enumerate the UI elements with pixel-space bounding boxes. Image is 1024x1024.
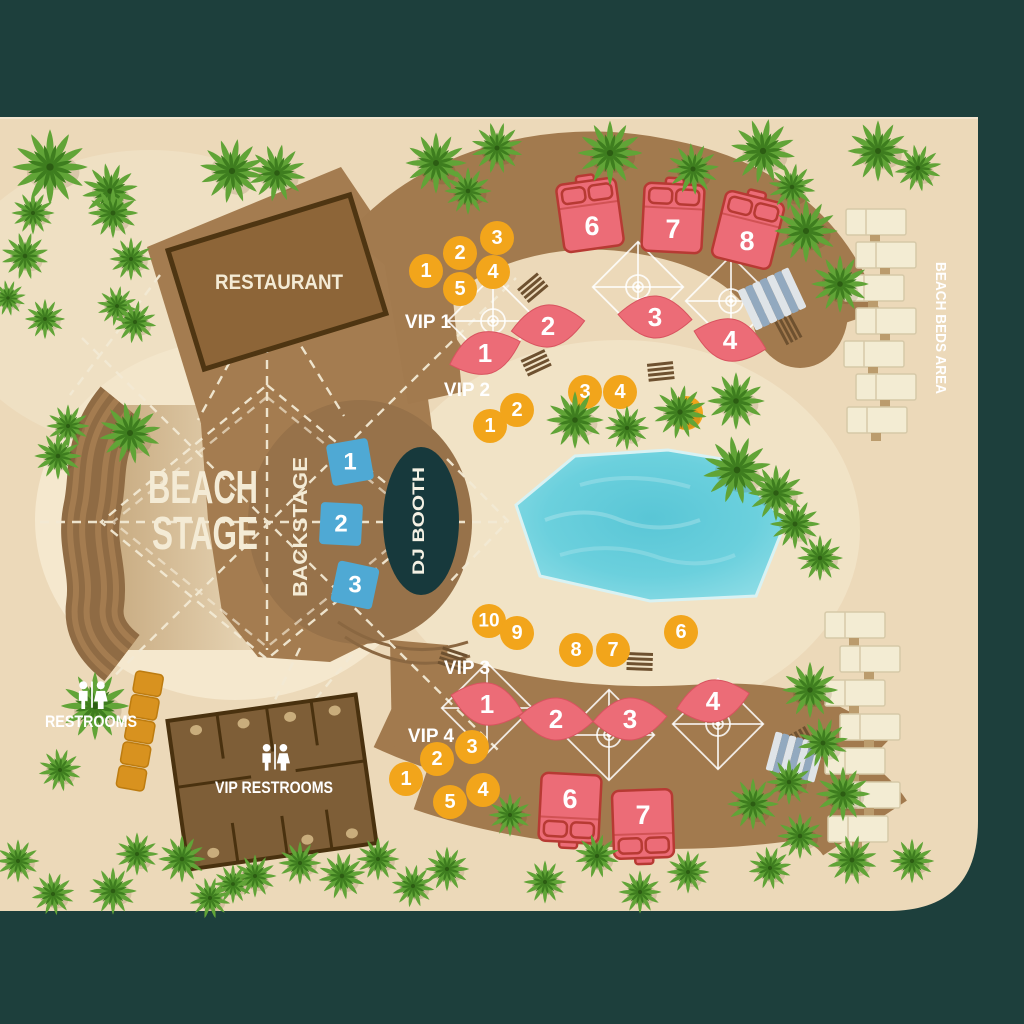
venue-map: 1 2 3 4 1 2 3 4 6 7 8 6 7 1 2 3 bbox=[0, 0, 1024, 1024]
vip3-label: VIP 3 bbox=[444, 658, 490, 679]
table-number: 7 bbox=[607, 639, 618, 661]
daybed-number: 4 bbox=[723, 325, 738, 355]
table-number: 4 bbox=[477, 779, 489, 801]
backstage-table-number: 2 bbox=[334, 511, 347, 538]
daybed-number: 2 bbox=[549, 704, 563, 734]
table-number: 3 bbox=[466, 736, 477, 758]
backstage-label: BACKSTAGE bbox=[290, 457, 312, 597]
bed-number: 8 bbox=[739, 226, 754, 256]
table-number: 2 bbox=[511, 399, 522, 421]
table-number: 2 bbox=[431, 748, 442, 770]
bed-number: 6 bbox=[584, 211, 599, 241]
backstage-table-number: 3 bbox=[348, 572, 361, 599]
restrooms-label: RESTROOMS bbox=[45, 712, 137, 731]
table-number: 5 bbox=[454, 278, 465, 300]
daybed-number: 3 bbox=[623, 704, 637, 734]
beach-stage-label-line2: STAGE bbox=[152, 507, 258, 559]
daybed-number: 1 bbox=[478, 338, 492, 368]
daybed-number: 1 bbox=[480, 689, 494, 719]
table-number: 9 bbox=[511, 622, 522, 644]
daybed-number: 4 bbox=[706, 686, 721, 716]
beach-beds-area-label: BEACH BEDS AREA bbox=[932, 262, 949, 394]
table-number: 1 bbox=[484, 415, 495, 437]
vip-restrooms-label: VIP RESTROOMS bbox=[215, 778, 333, 797]
table-number: 5 bbox=[444, 791, 455, 813]
vip4-label: VIP 4 bbox=[408, 726, 455, 747]
table-number: 4 bbox=[614, 381, 626, 403]
bed-number: 7 bbox=[635, 800, 650, 830]
table-number: 1 bbox=[420, 260, 431, 282]
beach-stage-label-line1: BEACH bbox=[148, 461, 258, 513]
bed-number: 7 bbox=[665, 214, 680, 244]
vip1-label: VIP 1 bbox=[405, 312, 452, 333]
vip2-label: VIP 2 bbox=[444, 380, 490, 401]
daybed-number: 3 bbox=[648, 302, 662, 332]
backstage-table-number: 1 bbox=[343, 449, 356, 476]
table-number: 4 bbox=[487, 261, 499, 283]
table-number: 8 bbox=[570, 639, 581, 661]
table-number: 6 bbox=[675, 621, 686, 643]
table-number: 10 bbox=[478, 611, 499, 632]
table-number: 2 bbox=[454, 242, 465, 264]
restaurant-label: RESTAURANT bbox=[215, 271, 343, 294]
dj-booth-label: DJ BOOTH bbox=[409, 467, 428, 575]
daybed-number: 2 bbox=[541, 311, 555, 341]
table-number: 1 bbox=[400, 768, 411, 790]
table-number: 3 bbox=[491, 227, 502, 249]
bed-number: 6 bbox=[562, 784, 577, 814]
sand-edge-highlight bbox=[0, 117, 978, 119]
